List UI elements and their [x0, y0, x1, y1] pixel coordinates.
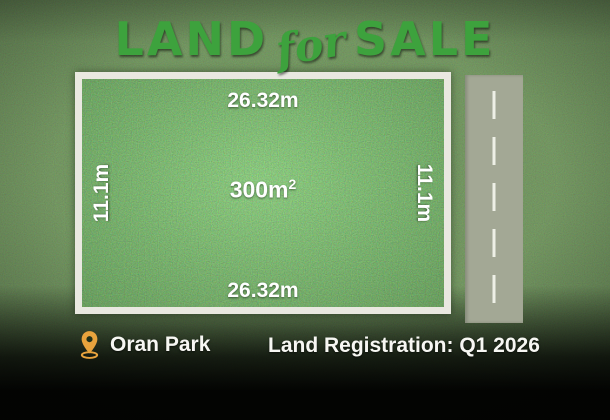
title-land: LAND: [115, 12, 269, 66]
top-dimension-label: 26.32m: [82, 89, 444, 113]
page-title: LANDforSALE: [0, 12, 610, 66]
location-row: Oran Park: [78, 330, 210, 359]
bottom-dimension-label: 26.32m: [82, 279, 444, 303]
map-pin-icon: [78, 330, 101, 359]
location-label: Oran Park: [110, 333, 210, 357]
road-strip: [465, 75, 523, 323]
area-value: 300m: [230, 177, 289, 203]
area-label: 300m2: [82, 176, 444, 204]
road-lane-marking: [493, 91, 496, 313]
registration-label: Land Registration: Q1 2026: [268, 334, 540, 358]
land-sale-poster: LANDforSALE 26.32m 26.32m 11.1m 11.1m 30…: [0, 0, 610, 420]
title-sale: SALE: [354, 12, 495, 66]
area-superscript: 2: [289, 176, 297, 192]
land-plot-diagram: 26.32m 26.32m 11.1m 11.1m 300m2: [75, 72, 451, 314]
